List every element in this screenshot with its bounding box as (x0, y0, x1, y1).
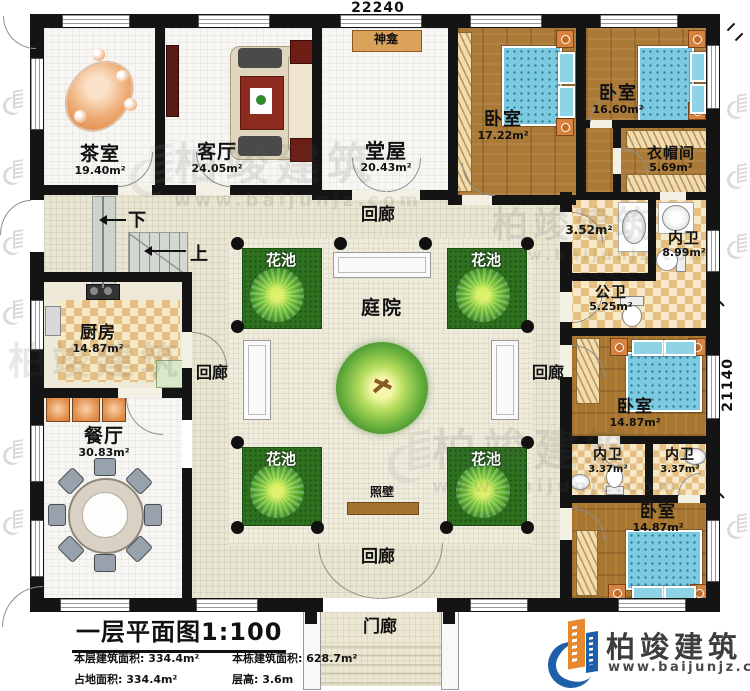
screen-wall (347, 502, 419, 515)
chair (48, 504, 66, 526)
room-name: 卧室 (580, 84, 656, 104)
column (311, 521, 324, 534)
burner (90, 287, 98, 295)
courtyard-label: 庭院 (348, 298, 416, 319)
watermark-icon (3, 88, 25, 116)
room-area: 14.87m² (595, 417, 675, 429)
room-label-living: 客厅 24.05m² (175, 142, 259, 176)
room-label-ensuite-main: 内卫 8.99m² (660, 230, 708, 259)
room-name: 内卫 (650, 448, 710, 464)
wall (648, 200, 656, 281)
window (707, 520, 719, 582)
door-gap (118, 388, 162, 398)
window (470, 15, 542, 27)
dimension-right: 21140 (720, 358, 736, 412)
room-area: 19.40m² (60, 165, 140, 177)
dimension-top: 22240 (343, 0, 413, 16)
window (31, 520, 43, 577)
stair-treads (128, 232, 188, 276)
bed (626, 530, 702, 590)
bench (333, 252, 431, 278)
room-label-tea: 茶室 19.40m² (60, 144, 140, 178)
wall (297, 598, 323, 612)
room-name: 茶室 (60, 144, 140, 165)
door-gap (182, 420, 192, 468)
bench (491, 340, 519, 420)
window (618, 599, 686, 611)
bench (243, 340, 271, 420)
watermark-icon (3, 508, 25, 536)
window (198, 15, 270, 27)
door-gap (352, 190, 420, 200)
plan-title: 一层平面图1:100 (72, 612, 286, 653)
dimension-tick (727, 23, 735, 31)
window (600, 15, 678, 27)
room-area: 24.05m² (175, 163, 259, 175)
wardrobe (626, 174, 708, 193)
room-area: 17.22m² (465, 130, 541, 142)
flower-bed-label: 花池 (249, 451, 313, 468)
room-area: 8.99m² (660, 247, 708, 259)
column (231, 320, 244, 333)
window (707, 355, 719, 419)
brand-logo-icon (548, 616, 604, 688)
pillow (558, 52, 575, 84)
cabinet (72, 396, 100, 422)
window (31, 425, 43, 482)
door-gap (598, 436, 620, 444)
door-gap (30, 200, 44, 252)
plan-stats: 本层建筑面积: 334.4m² 本栋建筑面积: 628.7m² 占地面积: 33… (74, 650, 382, 687)
room-name: 堂屋 (345, 140, 427, 162)
dimension-tick (735, 33, 743, 41)
dining-table-top (82, 492, 128, 538)
burner (104, 287, 112, 295)
room-label-bedroom-mr: 卧室 14.87m² (595, 398, 675, 429)
shrine-label: 神龛 (352, 33, 420, 46)
room-label-public-wc: 公卫 5.25m² (580, 284, 642, 313)
room-name: 厨房 (60, 324, 136, 343)
wall (44, 272, 192, 282)
room-area: 30.83m² (58, 447, 150, 459)
room-name: 客厅 (175, 142, 259, 163)
window (707, 45, 719, 109)
room-label-ensuite-left: 内卫 3.37m² (578, 448, 638, 475)
door-gap (678, 495, 700, 503)
wall (565, 436, 706, 444)
watermark-icon (727, 162, 749, 190)
corridor-label-bottom: 回廊 (350, 548, 406, 567)
nightstand (610, 338, 628, 356)
wall (443, 612, 455, 624)
room-area: 3.52m² (560, 224, 618, 237)
flower-bed-label: 花池 (249, 252, 313, 269)
porch-label: 门廊 (352, 618, 408, 637)
column (334, 237, 347, 250)
stair-arrow-head (144, 246, 152, 256)
door-gap (560, 292, 572, 322)
column (419, 237, 432, 250)
stair-up-label: 上 (190, 240, 210, 266)
column (440, 521, 453, 534)
room-name: 衣帽间 (630, 145, 712, 162)
cabinet (46, 396, 70, 422)
table-plant (256, 95, 266, 105)
cabinet (102, 396, 126, 422)
column (521, 320, 534, 333)
tea-stool (92, 48, 105, 61)
logo-windows (572, 626, 577, 663)
corridor-label-top: 回廊 (350, 206, 406, 225)
wall (305, 612, 317, 624)
stat-floor-height: 层高: 3.6m (232, 671, 382, 687)
room-name: 内卫 (578, 448, 638, 464)
wall (155, 28, 165, 185)
wall (448, 28, 458, 195)
door-arc (0, 200, 31, 235)
chair (94, 458, 116, 476)
room-name: 内卫 (660, 230, 708, 247)
screen-wall-label: 照壁 (360, 486, 404, 499)
wall (576, 192, 706, 200)
wall (437, 598, 463, 612)
wall (312, 28, 322, 190)
nightstand (556, 118, 574, 136)
window (60, 599, 130, 611)
window (470, 599, 528, 611)
watermark-icon (3, 438, 25, 466)
pillow (664, 340, 696, 356)
room-label-bedroom-tl: 卧室 17.22m² (465, 110, 541, 142)
room-name: 公卫 (580, 284, 642, 301)
room-label-ensuite-right: 内卫 3.37m² (650, 448, 710, 475)
room-label-bedroom-tr: 卧室 16.60m² (580, 84, 656, 116)
room-area: 14.87m² (60, 343, 136, 355)
room-label-bedroom-br: 卧室 14.87m² (618, 503, 698, 534)
room-name: 卧室 (618, 503, 698, 522)
sink (570, 474, 590, 490)
window (31, 58, 43, 130)
watermark-icon (3, 298, 25, 326)
room-label-dining: 餐厅 30.83m² (58, 426, 150, 460)
room-area: 5.25m² (580, 301, 642, 313)
wall (565, 328, 706, 336)
room-area: 5.69m² (630, 162, 712, 174)
room-area: 3.37m² (650, 464, 710, 475)
door-arc (3, 16, 36, 49)
sink (662, 205, 690, 231)
window (196, 599, 258, 611)
nightstand (688, 30, 706, 48)
courtyard-tree (336, 342, 428, 434)
room-name: 卧室 (465, 110, 541, 130)
brand-site: www.baijunjz.com (608, 660, 750, 675)
stat-footprint-area: 占地面积: 334.4m² (74, 671, 232, 687)
pillow (632, 340, 664, 356)
plant (456, 464, 510, 518)
nightstand (556, 30, 574, 48)
door-gap (560, 508, 572, 540)
stair-arrow-line (150, 250, 186, 252)
column (521, 436, 534, 449)
door-gap (660, 192, 686, 200)
room-name: 餐厅 (58, 426, 150, 447)
plant (456, 268, 510, 322)
room-area: 16.60m² (580, 104, 656, 116)
chair (144, 504, 162, 526)
flower-bed-label: 花池 (454, 252, 518, 269)
pillow (690, 84, 706, 114)
wall (44, 185, 312, 195)
room-area: 20.43m² (345, 162, 427, 174)
flower-bed-label: 花池 (454, 451, 518, 468)
chair (94, 554, 116, 572)
kitchen-sink (45, 306, 61, 336)
watermark-icon (727, 512, 749, 540)
room-area: 14.87m² (618, 522, 698, 534)
room-label-cloakroom: 衣帽间 5.69m² (630, 145, 712, 174)
door-gap (182, 332, 192, 368)
door-gap (462, 195, 492, 205)
fridge (156, 360, 184, 388)
watermark-icon (727, 232, 749, 260)
side-table (290, 40, 314, 64)
door-arc (2, 586, 43, 627)
stat-floor-area: 本层建筑面积: 334.4m² (74, 650, 232, 666)
sink (622, 210, 646, 244)
window (62, 15, 130, 27)
tea-stool (74, 110, 87, 123)
stair-arrow-line (104, 219, 126, 221)
stair-down-label: 下 (128, 206, 148, 232)
stat-building-area: 本栋建筑面积: 628.7m² (232, 650, 382, 666)
tea-stool (116, 70, 129, 83)
corridor-label-left: 回廊 (184, 364, 240, 382)
room-label-washroom: 3.52m² (560, 224, 618, 237)
column (231, 521, 244, 534)
pillow (690, 52, 706, 82)
column (231, 436, 244, 449)
room-name: 卧室 (595, 398, 675, 417)
room-label-hall: 堂屋 20.43m² (345, 140, 427, 175)
armchair (238, 48, 282, 68)
window (340, 15, 422, 27)
side-table (290, 138, 314, 162)
tea-stool (124, 98, 137, 111)
wall (565, 273, 656, 281)
door-gap (613, 148, 621, 174)
stair-arrow-head (99, 215, 107, 225)
column (521, 521, 534, 534)
corridor-label-right: 回廊 (520, 364, 576, 382)
shrine-name: 神龛 (374, 32, 398, 46)
column (231, 237, 244, 250)
tv-cabinet (166, 45, 179, 117)
window (707, 230, 719, 272)
plant (250, 268, 304, 322)
watermark-icon (3, 158, 25, 186)
plant (250, 464, 304, 518)
pillow (558, 86, 575, 118)
watermark-icon (727, 92, 749, 120)
room-label-kitchen: 厨房 14.87m² (60, 324, 136, 355)
floor-plan: 神龛 (0, 0, 750, 691)
logo-windows (589, 637, 593, 666)
window (31, 300, 43, 350)
column (521, 237, 534, 250)
room-area: 3.37m² (578, 464, 638, 475)
